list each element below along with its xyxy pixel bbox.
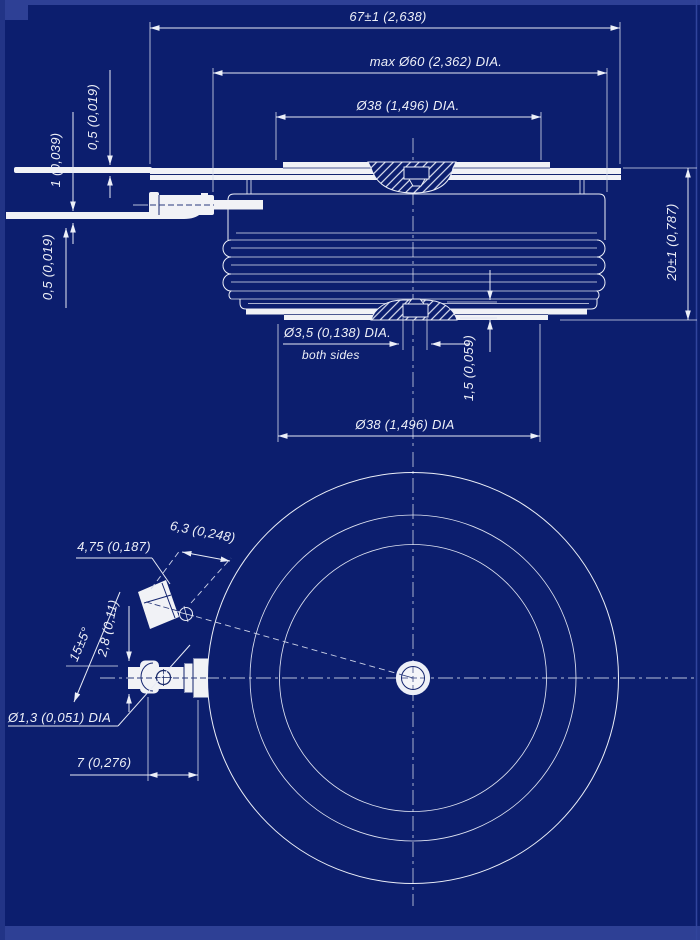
dim-lead-thickness-lower: 0,5 (0,019) bbox=[40, 234, 55, 300]
dim-pole-dia-bottom: Ø38 (1,496) DIA bbox=[354, 417, 454, 432]
dim-lead-spacing: 1 (0,039) bbox=[48, 133, 63, 188]
dim-lead-thickness-upper: 0,5 (0,019) bbox=[85, 84, 100, 150]
dim-pole-dia-top: Ø38 (1,496) DIA. bbox=[355, 98, 459, 113]
technical-drawing: 67±1 (2,638) max Ø60 (2,362) DIA. Ø38 (1… bbox=[0, 0, 700, 940]
gate-pin bbox=[213, 200, 263, 210]
center-hub bbox=[397, 662, 429, 694]
dim-gate-recess-dia: Ø3,5 (0,138) DIA. bbox=[283, 325, 391, 340]
dim-lead-offset: 7 (0,276) bbox=[77, 755, 132, 770]
page-frame bbox=[0, 0, 700, 940]
dim-overall-width: 67±1 (2,638) bbox=[349, 9, 426, 24]
blueprint-page: 67±1 (2,638) max Ø60 (2,362) DIA. Ø38 (1… bbox=[0, 0, 700, 940]
bottom-gate-recess bbox=[403, 304, 428, 317]
dim-hole-dia: Ø1,3 (0,051) DIA bbox=[7, 710, 111, 725]
upper-lead-ribbon bbox=[14, 167, 152, 173]
top-gate-recess bbox=[404, 167, 429, 179]
note-both-sides: both sides bbox=[302, 348, 360, 362]
dim-max-body-dia: max Ø60 (2,362) DIA. bbox=[370, 54, 502, 69]
dim-height: 20±1 (0,787) bbox=[664, 203, 679, 281]
dim-recess-depth: 1,5 (0,059) bbox=[461, 335, 476, 401]
dim-lug-length: 4,75 (0,187) bbox=[77, 539, 151, 554]
